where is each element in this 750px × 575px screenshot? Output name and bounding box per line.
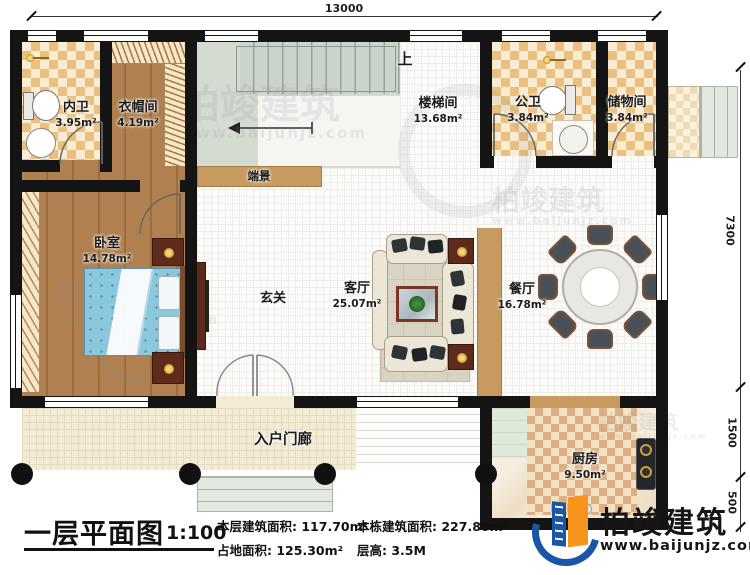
sofa-cushion — [427, 239, 443, 253]
sofa-cushion — [391, 345, 408, 361]
wall — [22, 160, 60, 172]
stairs-up-label: 上 — [392, 50, 418, 70]
sink-basin — [559, 125, 588, 154]
stat-label: 占地面积: — [217, 543, 272, 558]
dim-line-right — [740, 70, 741, 532]
room-label-public-bath: 公卫 3.84m² — [488, 95, 568, 126]
wall — [654, 156, 668, 168]
watermark-text: 柏竣建筑 — [180, 82, 340, 128]
watermark-stairs: 柏竣建筑 www.baijunjz.com — [180, 84, 367, 142]
wall — [294, 396, 357, 408]
stat-floor-height: 层高: 3.5M — [357, 540, 426, 559]
room-name: 楼梯间 — [395, 96, 481, 113]
plant-icon — [164, 248, 174, 258]
brand-site-text: www.baijunjz.com — [600, 538, 750, 554]
wardrobe — [22, 192, 40, 392]
porch-doorway — [216, 396, 294, 408]
bed-pillow — [158, 276, 180, 310]
stat-value: 3.5M — [391, 543, 426, 558]
room-name: 玄关 — [233, 291, 313, 308]
nightstand-plant — [152, 238, 184, 266]
room-label-living: 客厅 25.07m² — [315, 281, 399, 312]
plant-icon — [164, 364, 174, 374]
kitchen-garden-patch — [492, 408, 527, 458]
dim-value: 13000 — [325, 2, 363, 15]
room-name: 公卫 — [488, 95, 568, 112]
wall — [56, 30, 84, 42]
room-area: 25.07m² — [315, 298, 399, 312]
watermark-kitchen: 柏竣建筑 www.baijunjz.com — [598, 412, 708, 441]
window — [410, 30, 462, 42]
shower-hose — [33, 57, 49, 59]
window — [45, 396, 148, 408]
floor-terrace-lines — [356, 408, 480, 470]
dim-label-main-depth: 7300 — [724, 209, 737, 253]
bed-pillow — [158, 316, 180, 350]
dining-chair — [587, 329, 613, 349]
sofa-cushion — [452, 294, 467, 311]
room-label-storage: 储物间 3.84m² — [587, 95, 667, 126]
dim-label-porch-depth: 1500 — [726, 411, 739, 455]
room-area: 14.78m² — [67, 253, 147, 267]
wall — [536, 156, 612, 168]
tv-icon — [206, 280, 209, 332]
sofa-cushion — [411, 347, 428, 362]
logo-building-orange — [568, 495, 588, 548]
stat-total-area: 本栋建筑面积: 227.80m² — [357, 516, 508, 535]
sink-basin — [26, 128, 56, 158]
wall — [148, 396, 216, 408]
coffee-table-plant-icon — [409, 296, 425, 312]
side-porch-tile — [668, 86, 700, 158]
room-name: 厨房 — [545, 452, 625, 469]
wall — [185, 30, 197, 396]
stat-floor-area: 本层建筑面积: 117.70m² — [217, 516, 368, 535]
room-label-stairwell: 楼梯间 13.68m² — [395, 96, 481, 127]
title-underline — [24, 548, 214, 551]
wall — [258, 30, 410, 42]
burner-icon — [640, 466, 652, 478]
door-bedroom — [138, 192, 182, 236]
room-area: 4.19m² — [98, 117, 178, 131]
window — [84, 30, 148, 42]
room-label-entry-porch: 入户门廊 — [223, 431, 343, 450]
window — [656, 215, 668, 300]
porch-column — [11, 463, 33, 485]
dining-chair — [587, 225, 613, 245]
porch-column — [179, 463, 201, 485]
shower-hose — [550, 59, 566, 61]
room-label-kitchen: 厨房 9.50m² — [545, 452, 625, 483]
room-area: 13.68m² — [395, 113, 481, 127]
stat-value: 227.80m² — [441, 519, 508, 534]
side-porch-steps — [700, 86, 738, 158]
wall — [10, 396, 45, 408]
dim-value: 7300 — [724, 215, 737, 246]
dim-label-total-width: 13000 — [318, 2, 370, 15]
title-text: 一层平面图 — [24, 519, 164, 550]
room-label-bedroom: 卧室 14.78m² — [67, 236, 147, 267]
stat-value: 125.30m² — [276, 543, 343, 558]
kitchen-threshold — [530, 396, 620, 408]
brand-name-text: 柏竣建筑 — [600, 506, 728, 541]
floorplan-canvas: 上 柏竣建筑 www.baijunjz.com 柏竣建筑 www.baijunj… — [0, 0, 750, 575]
sofa-cushion — [429, 345, 446, 360]
room-name: 储物间 — [587, 95, 667, 112]
window — [598, 30, 646, 42]
brand-name: 柏竣建筑 — [600, 498, 728, 542]
wall — [656, 300, 668, 530]
wall — [620, 396, 668, 408]
window — [357, 396, 458, 408]
end-table-plant — [448, 238, 474, 264]
room-area: 16.78m² — [482, 299, 562, 313]
room-label-cloakroom: 衣帽间 4.19m² — [98, 100, 178, 131]
stat-label: 层高: — [357, 543, 387, 558]
wall — [22, 180, 140, 192]
dim-line-top — [30, 16, 658, 17]
sofa-cushion — [391, 238, 408, 253]
brand-logo-icon — [530, 494, 596, 560]
page-title: 一层平面图 — [24, 512, 164, 551]
dim-value: 1500 — [726, 417, 739, 448]
dining-table-center — [580, 267, 620, 307]
watermark-site: www.baijunjz.com — [180, 126, 367, 142]
stat-label: 本层建筑面积: — [217, 519, 297, 534]
entry-steps — [197, 476, 333, 512]
wall — [180, 180, 185, 192]
porch-column — [314, 463, 336, 485]
room-name: 卧室 — [67, 236, 147, 253]
cloakroom-rack-top — [112, 42, 186, 64]
plant-icon — [457, 247, 467, 257]
brand-site: www.baijunjz.com — [600, 538, 750, 554]
room-name: 入户门廊 — [223, 431, 343, 450]
porch-column — [475, 463, 497, 485]
room-label-dining: 餐厅 16.78m² — [482, 282, 562, 313]
room-name: 客厅 — [315, 281, 399, 298]
wall — [10, 30, 22, 295]
room-label-foyer: 玄关 — [233, 291, 313, 308]
window — [10, 295, 22, 388]
end-table-plant — [448, 344, 474, 370]
window — [502, 30, 550, 42]
room-name: 端景 — [219, 169, 299, 184]
stat-land-area: 占地面积: 125.30m² — [217, 540, 343, 559]
room-name: 餐厅 — [482, 282, 562, 299]
stat-label: 本栋建筑面积: — [357, 519, 437, 534]
burner-icon — [640, 444, 652, 456]
room-area: 3.84m² — [587, 112, 667, 126]
room-area: 9.50m² — [545, 469, 625, 483]
logo-building-blue — [552, 501, 566, 546]
sofa-cushion — [450, 318, 464, 334]
nightstand-plant — [152, 352, 184, 384]
sofa-cushion — [409, 236, 426, 251]
room-name: 衣帽间 — [98, 100, 178, 117]
stairs-up-text: 上 — [397, 50, 412, 68]
sofa-cushion — [450, 270, 465, 287]
window — [205, 30, 258, 42]
window — [28, 30, 56, 42]
wall — [550, 30, 598, 42]
room-label-console: 端景 — [219, 169, 299, 184]
room-area: 3.84m² — [488, 112, 568, 126]
wall — [458, 396, 530, 408]
plant-icon — [457, 353, 467, 363]
entry-double-door — [216, 352, 294, 396]
